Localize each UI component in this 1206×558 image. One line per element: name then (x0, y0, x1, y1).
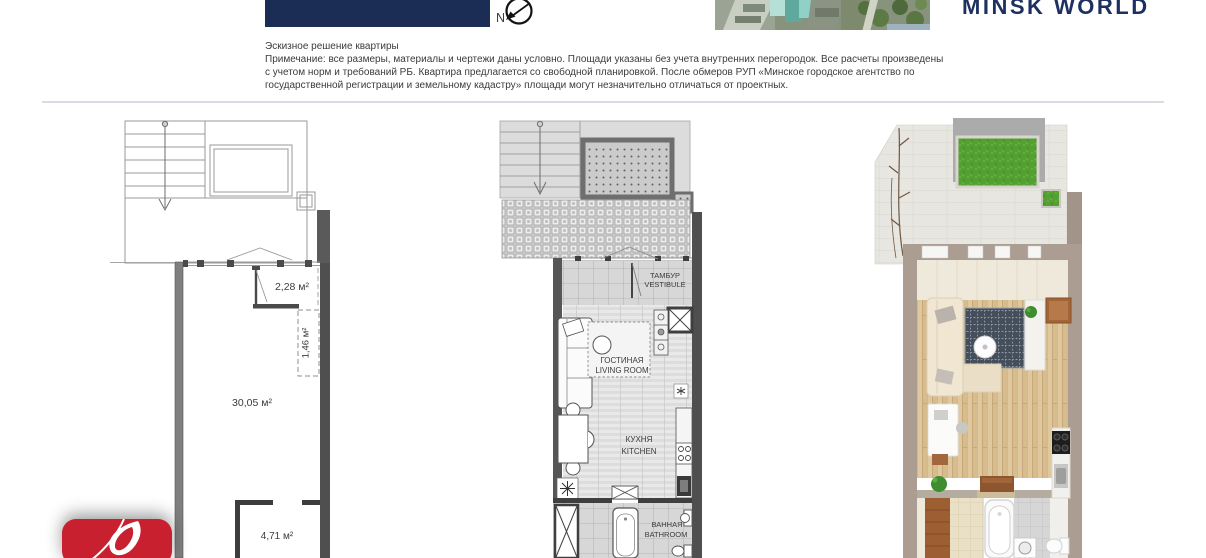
balcony-glazing (110, 248, 320, 267)
ac-unit-marker (674, 384, 688, 398)
bathtub (613, 508, 638, 558)
brand-wordmark: MINSK WORLD (962, 0, 1150, 20)
floor-plan-sheet: N MINSK WORLD Эскизное решение квартиры (0, 0, 1206, 558)
paved-walkway (502, 200, 690, 258)
chair (932, 454, 948, 465)
kitchen-appliance-column (654, 310, 668, 355)
plant (1025, 306, 1037, 318)
section-divider (42, 101, 1164, 103)
chair (956, 422, 968, 434)
toilet (1046, 538, 1069, 554)
toilet (672, 545, 692, 557)
room-label-vestibule-en: VESTIBULE (644, 280, 685, 289)
disclaimer-line: Примечание: все размеры, материалы и чер… (265, 53, 943, 66)
room-label-living-en: LIVING ROOM (595, 366, 649, 375)
area-label-bathroom: 4,71 м² (261, 531, 294, 542)
ottoman (963, 364, 1001, 392)
developer-logo (62, 519, 172, 558)
tall-dresser (925, 498, 950, 558)
area-label-niche: 1,46 м² (301, 328, 312, 359)
floor-plan-furnished: ТАМБУР VESTIBULE ГОСТИНАЯ LIVING ROOM КУ… (488, 118, 715, 558)
area-label-entry: 2,28 м² (275, 281, 310, 293)
compass-north-label: N (496, 11, 505, 25)
washing-machine (1014, 538, 1036, 558)
stairwell (125, 121, 315, 263)
disclaimer-line: с учетом норм и требований РБ. Квартира … (265, 66, 943, 79)
kitchen-counter (1052, 428, 1070, 498)
compass-icon: N (492, 0, 540, 30)
plant-marker (557, 478, 578, 499)
area-label-main: 30,05 м² (232, 397, 272, 409)
room-label-living-ru: ГОСТИНАЯ (600, 356, 643, 365)
kitchen-counter (676, 408, 692, 498)
room-label-vestibule-ru: ТАМБУР (650, 271, 680, 280)
disclaimer-note: Эскизное решение квартиры Примечание: вс… (265, 40, 943, 92)
disclaimer-line: государственной регистрации и земельному… (265, 79, 943, 92)
balcony-door-swing (227, 248, 292, 260)
bathroom-door-sill (612, 486, 638, 499)
header-color-bar (265, 0, 490, 27)
aerial-render-thumbnail (715, 0, 930, 30)
floor-plan-3d-render (862, 118, 1097, 558)
room-label-bath-en: BATHROOM (645, 530, 688, 539)
room-label-kitchen-en: KITCHEN (621, 447, 656, 456)
room-label-kitchen-ru: КУХНЯ (626, 435, 653, 444)
bathtub (985, 500, 1014, 558)
wardrobe-box (555, 505, 578, 558)
tabletop-item (934, 410, 948, 420)
sofa (927, 298, 963, 396)
logo-swirl-icon (62, 519, 172, 558)
bathroom-walls (235, 500, 320, 558)
shaft-box (668, 308, 692, 332)
floor-plan-schematic: 2,28 м² 1,46 м² 30,05 м² 4,71 м² (105, 118, 340, 558)
sofa (558, 318, 592, 408)
room-label-bath-ru: ВАННАЯ (651, 520, 682, 529)
disclaimer-title: Эскизное решение квартиры (265, 40, 943, 53)
